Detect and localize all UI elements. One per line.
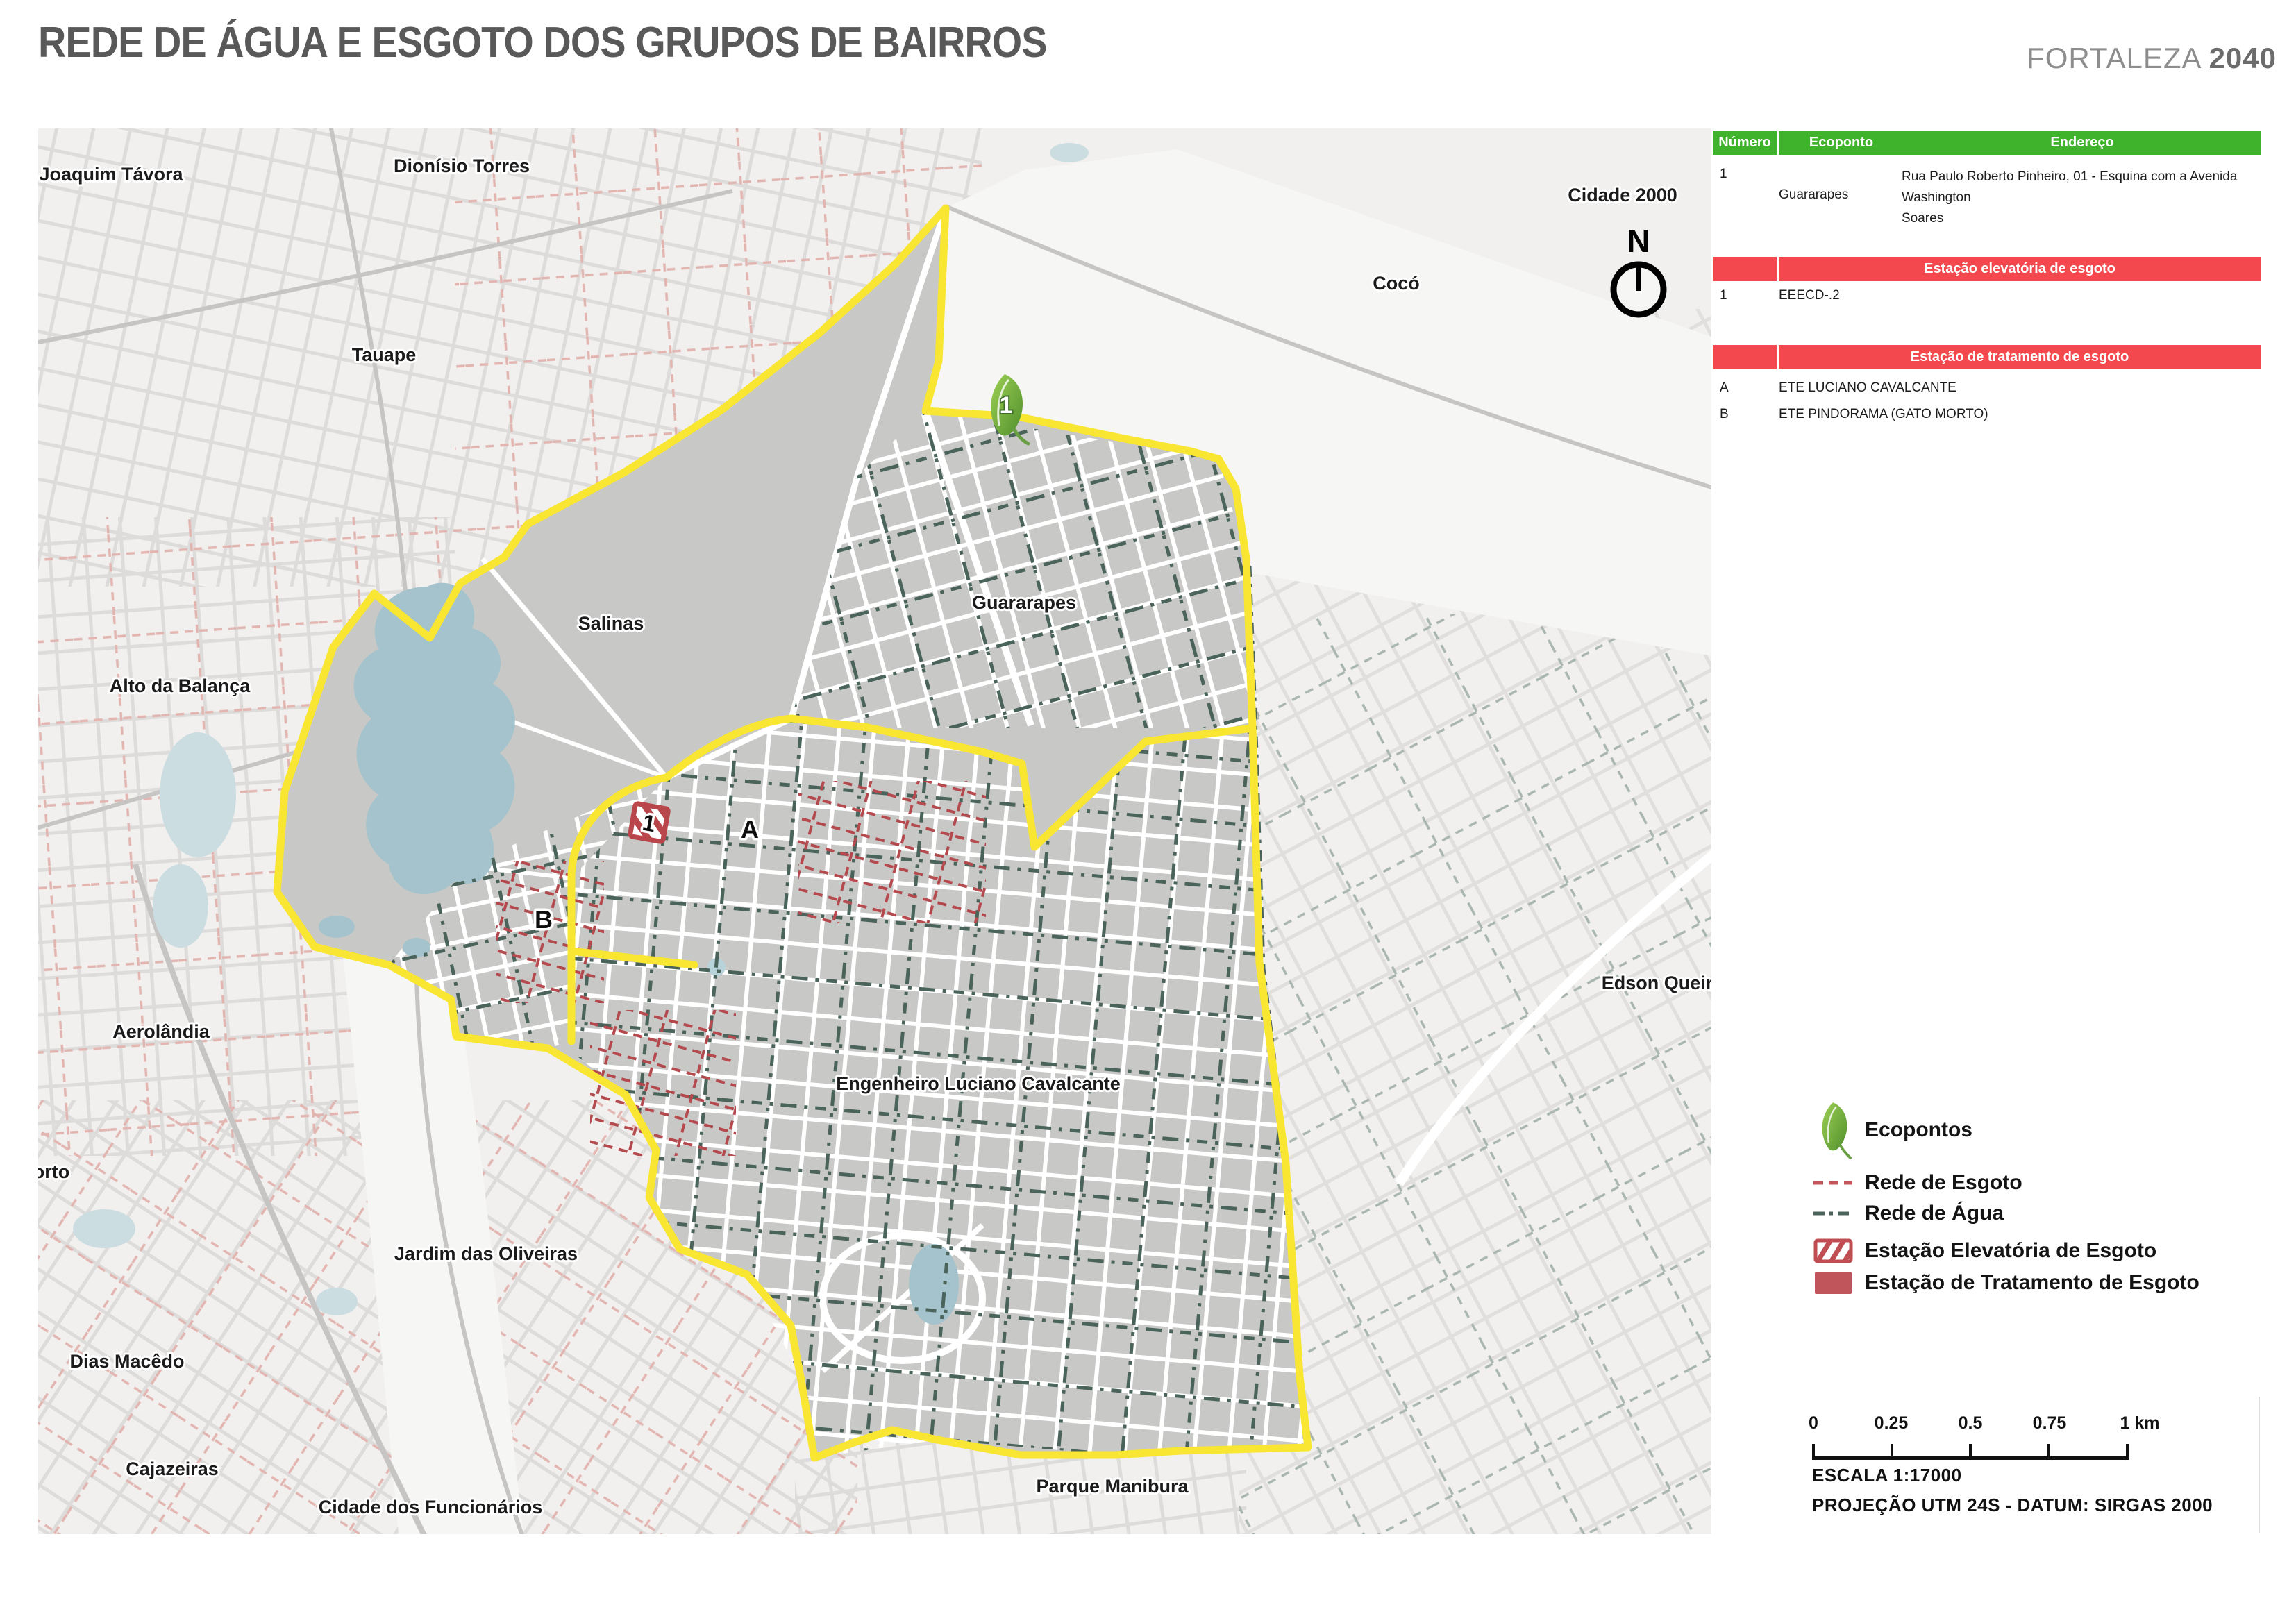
treatment-marker-b: B bbox=[535, 905, 553, 934]
legend-item-agua: Rede de Água bbox=[1812, 1204, 2004, 1223]
elevatoria-id: 1 bbox=[1713, 288, 1777, 303]
scale-tick: 1 km bbox=[2120, 1413, 2160, 1433]
scale-bar bbox=[1812, 1444, 2129, 1460]
hatched-box-icon bbox=[1812, 1238, 1854, 1263]
tratamento-id: B bbox=[1713, 407, 1777, 422]
tratamento-id: A bbox=[1713, 380, 1777, 396]
scale-text: ESCALA 1:17000 bbox=[1812, 1465, 1962, 1486]
scale-tick: 0.75 bbox=[2033, 1413, 2067, 1433]
map-label: Parque Manibura bbox=[1036, 1476, 1189, 1497]
map-label: Cajazeiras bbox=[126, 1458, 219, 1479]
north-label: N bbox=[1627, 223, 1650, 259]
map-label: Edson Queiroz bbox=[1602, 973, 1711, 993]
scale-tick: 0.5 bbox=[1959, 1413, 1983, 1433]
tratamento-title: Estação de tratamento de esgoto bbox=[1779, 349, 2261, 365]
tratamento-header: Estação de tratamento de esgoto bbox=[1713, 345, 2261, 369]
map-label: Dias Macêdo bbox=[69, 1351, 184, 1372]
legend-item-elevatoria: Estação Elevatória de Esgoto bbox=[1812, 1238, 2156, 1264]
elevatoria-header: Estação elevatória de esgoto bbox=[1713, 257, 2261, 281]
tratamento-name: ETE LUCIANO CAVALCANTE bbox=[1777, 380, 2235, 396]
map-label: Tauape bbox=[352, 344, 417, 365]
map-label: Jardim das Oliveiras bbox=[394, 1243, 578, 1264]
ecoponto-numero: 1 bbox=[1713, 167, 1777, 229]
legend-item-tratamento: Estação de Tratamento de Esgoto bbox=[1812, 1270, 2199, 1296]
tratamento-name: ETE PINDORAMA (GATO MORTO) bbox=[1777, 407, 2235, 422]
ecoponto-address: Rua Paulo Roberto Pinheiro, 01 - Esquina… bbox=[1902, 167, 2261, 229]
map-label: Cidade dos Funcionários bbox=[319, 1497, 543, 1517]
map-label: Joaquim Távora bbox=[39, 164, 183, 185]
legend-label: Rede de Água bbox=[1865, 1202, 2004, 1225]
legend-item-esgoto: Rede de Esgoto bbox=[1812, 1173, 2022, 1193]
map-label: Cocó bbox=[1373, 273, 1420, 294]
col-endereco: Endereço bbox=[1904, 135, 2261, 151]
tratamento-row-a: A ETE LUCIANO CAVALCANTE bbox=[1713, 380, 2261, 396]
map-label: Alto da Balança bbox=[110, 675, 251, 696]
elevatoria-row: 1 EEECD-.2 bbox=[1713, 288, 2261, 303]
ecoponto-row: 1 Guararapes Rua Paulo Roberto Pinheiro,… bbox=[1713, 167, 2261, 229]
address-line: Rua Paulo Roberto Pinheiro, 01 - Esquina… bbox=[1902, 167, 2261, 187]
legend-label: Ecopontos bbox=[1865, 1118, 1972, 1142]
address-line: Washington bbox=[1902, 187, 2261, 208]
map-label: Salinas bbox=[578, 613, 644, 634]
col-numero: Número bbox=[1713, 131, 1777, 155]
ecoponto-name: Guararapes bbox=[1777, 167, 1902, 229]
legend-label: Estação Elevatória de Esgoto bbox=[1865, 1239, 2156, 1263]
elevatoria-name: EEECD-.2 bbox=[1777, 288, 1902, 303]
map-label: Guararapes bbox=[972, 592, 1076, 613]
scale-tick: 0.25 bbox=[1875, 1413, 1909, 1433]
sewage-line-icon bbox=[1812, 1179, 1854, 1187]
tratamento-row-b: B ETE PINDORAMA (GATO MORTO) bbox=[1713, 407, 2261, 422]
map-label: Aeroporto bbox=[38, 1161, 69, 1182]
treatment-marker-a: A bbox=[741, 815, 759, 843]
legend-item-ecopontos: Ecopontos bbox=[1812, 1098, 1972, 1162]
col-ecoponto: Ecoponto bbox=[1779, 135, 1904, 151]
legend-label: Rede de Esgoto bbox=[1865, 1171, 2022, 1195]
map-label: Engenheiro Luciano Cavalcante bbox=[836, 1073, 1121, 1094]
scale-tick: 0 bbox=[1809, 1413, 1818, 1433]
brand: FORTALEZA2040 bbox=[2027, 42, 2277, 75]
brand-year: 2040 bbox=[2209, 42, 2277, 74]
map-label: Aerolândia bbox=[112, 1021, 210, 1042]
address-line: Soares bbox=[1902, 208, 2261, 229]
ecopontos-table-header: Número Ecoponto Endereço bbox=[1713, 131, 2261, 155]
poster-page: REDE DE ÁGUA E ESGOTO DOS GRUPOS DE BAIR… bbox=[0, 0, 2296, 1623]
water-line-icon bbox=[1812, 1209, 1854, 1218]
page-title: REDE DE ÁGUA E ESGOTO DOS GRUPOS DE BAIR… bbox=[38, 18, 1047, 67]
ecoponto-marker-label: 1 bbox=[1000, 392, 1013, 419]
map-canvas: 1 1 A B N Joaquim TávoraDionísio TorresT… bbox=[38, 128, 1711, 1534]
elevatoria-title: Estação elevatória de esgoto bbox=[1779, 261, 2261, 277]
legend-label: Estação de Tratamento de Esgoto bbox=[1865, 1271, 2199, 1295]
projection-text: PROJEÇÃO UTM 24S - DATUM: SIRGAS 2000 bbox=[1812, 1495, 2213, 1516]
map-label: Cidade 2000 bbox=[1568, 185, 1677, 205]
map-label: Dionísio Torres bbox=[394, 155, 530, 176]
solid-box-icon bbox=[1812, 1270, 1854, 1295]
panel-right-rule bbox=[2259, 1397, 2260, 1533]
brand-city: FORTALEZA bbox=[2027, 42, 2202, 74]
map-svg: 1 1 A B N Joaquim TávoraDionísio TorresT… bbox=[38, 128, 1711, 1534]
leaf-icon bbox=[1812, 1100, 1854, 1160]
